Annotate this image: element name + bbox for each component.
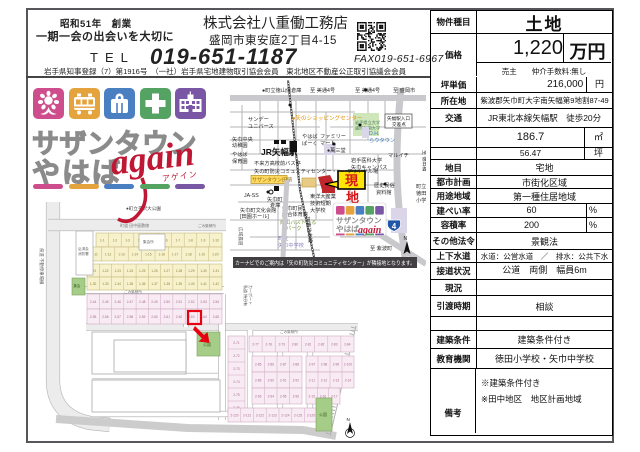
svg-text:2-99: 2-99 <box>333 363 340 367</box>
svg-text:小学校: 小学校 <box>416 196 426 204</box>
svg-text:JR矢幅駅: JR矢幅駅 <box>261 147 298 157</box>
svg-text:県道 不動停車場線: 県道 不動停車場線 <box>38 248 45 285</box>
svg-text:2-81: 2-81 <box>305 343 312 347</box>
svg-text:1-10: 1-10 <box>213 239 220 243</box>
svg-text:2-58: 2-58 <box>127 315 134 319</box>
svg-text:2-121: 2-121 <box>243 414 251 418</box>
svg-text:ごみ集積所: ごみ集積所 <box>280 329 298 334</box>
svg-text:至 美通4号: 至 美通4号 <box>355 86 380 94</box>
svg-text:2-92: 2-92 <box>293 379 300 383</box>
svg-text:2-78: 2-78 <box>266 343 273 347</box>
svg-text:1-14: 1-14 <box>132 253 139 257</box>
svg-text:2-45: 2-45 <box>102 300 109 304</box>
svg-text:至 徳田橋: 至 徳田橋 <box>421 150 426 171</box>
svg-text:1-32: 1-32 <box>90 282 97 286</box>
svg-text:ファミリー: ファミリー <box>320 133 346 140</box>
svg-text:矢巾町: 矢巾町 <box>267 195 283 203</box>
svg-text:2-84: 2-84 <box>344 343 351 347</box>
svg-text:2-98: 2-98 <box>321 363 328 367</box>
svg-text:消防署: 消防署 <box>78 251 89 256</box>
svg-text:ごみ集積所: ごみ集積所 <box>124 289 142 294</box>
svg-text:1-35: 1-35 <box>127 282 134 286</box>
svg-text:2-88: 2-88 <box>293 363 300 367</box>
svg-text:広域農道: 広域農道 <box>237 227 244 246</box>
svg-text:2-123: 2-123 <box>269 414 277 418</box>
svg-text:1-39: 1-39 <box>176 282 183 286</box>
svg-text:やはば: やはば <box>232 150 248 158</box>
svg-text:2-51: 2-51 <box>176 300 183 304</box>
svg-text:2-120: 2-120 <box>230 414 238 418</box>
svg-text:2-12: 2-12 <box>321 379 328 383</box>
svg-text:2-90: 2-90 <box>268 379 275 383</box>
svg-text:1-19: 1-19 <box>199 253 206 257</box>
svg-text:1-8: 1-8 <box>188 239 193 243</box>
svg-text:2-52: 2-52 <box>188 300 195 304</box>
svg-text:集会: 集会 <box>74 283 81 288</box>
svg-text:2-55: 2-55 <box>90 315 97 319</box>
svg-text:1-29: 1-29 <box>188 269 195 273</box>
svg-text:現: 現 <box>345 173 358 188</box>
svg-text:JA-SS: JA-SS <box>244 193 259 199</box>
svg-text:2-54: 2-54 <box>213 300 220 304</box>
svg-text:幼稚園: 幼稚園 <box>232 141 248 149</box>
svg-text:岩手医科大学: 岩手医科大学 <box>351 156 382 164</box>
svg-text:1-30: 1-30 <box>200 269 207 273</box>
svg-text:矢巾町文化会館: 矢巾町文化会館 <box>240 206 276 214</box>
svg-text:1-26: 1-26 <box>151 269 158 273</box>
svg-text:交差点: 交差点 <box>392 121 406 128</box>
svg-text:矢幅駅入口: 矢幅駅入口 <box>387 115 410 122</box>
svg-text:2-96: 2-96 <box>293 395 300 399</box>
svg-text:ぱーく: ぱーく <box>302 140 318 147</box>
svg-text:至 紫波町: 至 紫波町 <box>370 244 392 252</box>
svg-text:2-75: 2-75 <box>233 393 240 397</box>
svg-text:2-100: 2-100 <box>344 363 352 367</box>
svg-text:1-13: 1-13 <box>118 253 125 257</box>
svg-text:1-38: 1-38 <box>164 282 171 286</box>
svg-text:至 美通4号: 至 美通4号 <box>310 86 335 94</box>
svg-text:2-57: 2-57 <box>115 315 122 319</box>
svg-text:2-122: 2-122 <box>256 414 264 418</box>
svg-text:2-83: 2-83 <box>331 343 338 347</box>
svg-text:サザンタウン: サザンタウン <box>336 215 382 225</box>
svg-text:2-77: 2-77 <box>252 343 259 347</box>
svg-text:東洋大産業: 東洋大産業 <box>310 192 336 200</box>
svg-text:2-80: 2-80 <box>292 343 299 347</box>
svg-text:1-23: 1-23 <box>115 269 122 273</box>
svg-text:らウタウン: らウタウン <box>369 136 395 144</box>
svg-text:1-12: 1-12 <box>105 253 112 257</box>
svg-text:2-13: 2-13 <box>333 379 340 383</box>
svg-text:カーナビでのご案内は「矢の町防災コミュニティセンター」が隣接: カーナビでのご案内は「矢の町防災コミュニティセンター」が隣接地となります。 <box>235 259 415 267</box>
svg-text:1-33: 1-33 <box>102 282 109 286</box>
svg-text:1-40: 1-40 <box>188 282 195 286</box>
svg-text:矢の町防災コミュニティセンター・・・フットサル場: 矢の町防災コミュニティセンター・・・フットサル場 <box>254 167 378 175</box>
svg-text:1-24: 1-24 <box>127 269 134 273</box>
svg-text:1-34: 1-34 <box>115 282 122 286</box>
svg-text:1-27: 1-27 <box>164 269 171 273</box>
svg-text:●萬三堂: ●萬三堂 <box>327 146 346 154</box>
svg-text:徳田: 徳田 <box>416 189 426 197</box>
svg-text:ユニバース: ユニバース <box>248 123 274 130</box>
svg-text:2-93: 2-93 <box>255 395 262 399</box>
svg-text:2-50: 2-50 <box>164 300 171 304</box>
svg-text:2-44: 2-44 <box>90 300 97 304</box>
svg-text:2-49: 2-49 <box>151 300 158 304</box>
svg-text:1-31: 1-31 <box>213 269 220 273</box>
svg-text:至 盛岡市: 至 盛岡市 <box>393 86 415 94</box>
svg-text:集会所: 集会所 <box>143 239 154 244</box>
svg-text:2-74: 2-74 <box>233 380 240 384</box>
svg-text:カーポート: カーポート <box>248 285 254 305</box>
svg-text:不来方高校前バス停: 不来方高校前バス停 <box>254 159 301 167</box>
svg-text:技術短期: 技術短期 <box>310 199 331 207</box>
svg-text:2-94: 2-94 <box>268 395 275 399</box>
svg-text:2-56: 2-56 <box>102 315 109 319</box>
svg-text:2-60: 2-60 <box>151 315 158 319</box>
svg-text:パーク: パーク <box>286 225 302 232</box>
svg-text:サンデー: サンデー <box>248 115 269 123</box>
svg-text:1-20: 1-20 <box>212 253 219 257</box>
svg-text:2-14: 2-14 <box>345 379 352 383</box>
svg-text:2-15: 2-15 <box>309 395 316 399</box>
svg-text:保育園: 保育園 <box>232 157 248 165</box>
svg-text:1-3: 1-3 <box>125 239 130 243</box>
svg-text:1-42: 1-42 <box>213 282 220 286</box>
svg-text:2-95: 2-95 <box>280 395 287 399</box>
svg-text:2-59: 2-59 <box>139 315 146 319</box>
svg-text:2-47: 2-47 <box>127 300 134 304</box>
svg-text:2-86: 2-86 <box>268 363 275 367</box>
svg-text:[田園ホール]: [田園ホール] <box>240 213 269 220</box>
svg-text:1-22: 1-22 <box>102 269 109 273</box>
svg-text:2-73: 2-73 <box>233 367 240 371</box>
svg-text:1-18: 1-18 <box>185 253 192 257</box>
svg-text:資料館: 資料館 <box>376 188 392 196</box>
svg-text:N: N <box>404 236 408 242</box>
svg-text:1-36: 1-36 <box>139 282 146 286</box>
svg-text:●町立徳山保倉庫: ●町立徳山保倉庫 <box>262 86 301 94</box>
svg-text:弘済会: 弘済会 <box>78 246 89 251</box>
svg-text:1-9: 1-9 <box>201 239 206 243</box>
svg-text:2-125: 2-125 <box>294 414 302 418</box>
svg-text:1-16: 1-16 <box>159 253 166 257</box>
svg-text:1-15: 1-15 <box>145 253 152 257</box>
svg-text:1-2: 1-2 <box>113 239 118 243</box>
svg-text:D.H.: D.H. <box>369 131 379 137</box>
svg-text:1-7: 1-7 <box>176 239 181 243</box>
svg-text:1-1: 1-1 <box>100 239 105 243</box>
svg-text:2-97: 2-97 <box>309 363 316 367</box>
svg-text:2-72: 2-72 <box>233 354 240 358</box>
svg-text:2-87: 2-87 <box>280 363 287 367</box>
svg-text:公園: 公園 <box>319 411 327 417</box>
svg-text:2-61: 2-61 <box>164 315 171 319</box>
svg-text:マルイチ: マルイチ <box>388 152 409 159</box>
svg-text:●矢のショッピングセンター: ●矢のショッピングセンター <box>292 114 363 122</box>
svg-text:N: N <box>347 417 350 422</box>
svg-text:4: 4 <box>392 222 397 231</box>
svg-text:2-124: 2-124 <box>281 414 289 418</box>
svg-text:やはば: やはば <box>302 132 318 140</box>
svg-text:2-79: 2-79 <box>279 343 286 347</box>
svg-text:2-46: 2-46 <box>115 300 122 304</box>
svg-text:2-89: 2-89 <box>255 379 262 383</box>
svg-text:大学校: 大学校 <box>310 206 326 214</box>
svg-text:やはば: やはば <box>336 224 359 234</box>
svg-text:2-48: 2-48 <box>139 300 146 304</box>
svg-text:2-65: 2-65 <box>213 315 220 319</box>
svg-text:2-11: 2-11 <box>309 379 315 383</box>
svg-text:2-82: 2-82 <box>318 343 325 347</box>
svg-text:1-28: 1-28 <box>176 269 183 273</box>
svg-text:2-71: 2-71 <box>233 341 240 345</box>
svg-text:1-41: 1-41 <box>200 282 207 286</box>
svg-text:1-25: 1-25 <box>139 269 146 273</box>
svg-text:2-126: 2-126 <box>307 414 315 418</box>
svg-text:2-53: 2-53 <box>200 300 207 304</box>
svg-text:2-85: 2-85 <box>255 363 262 367</box>
svg-text:2-62: 2-62 <box>176 315 183 319</box>
svg-text:1-37: 1-37 <box>151 282 158 286</box>
svg-text:町立: 町立 <box>416 182 426 190</box>
svg-text:1-17: 1-17 <box>172 253 179 257</box>
svg-text:矢巾中央: 矢巾中央 <box>232 135 254 143</box>
svg-text:2-91: 2-91 <box>280 379 287 383</box>
